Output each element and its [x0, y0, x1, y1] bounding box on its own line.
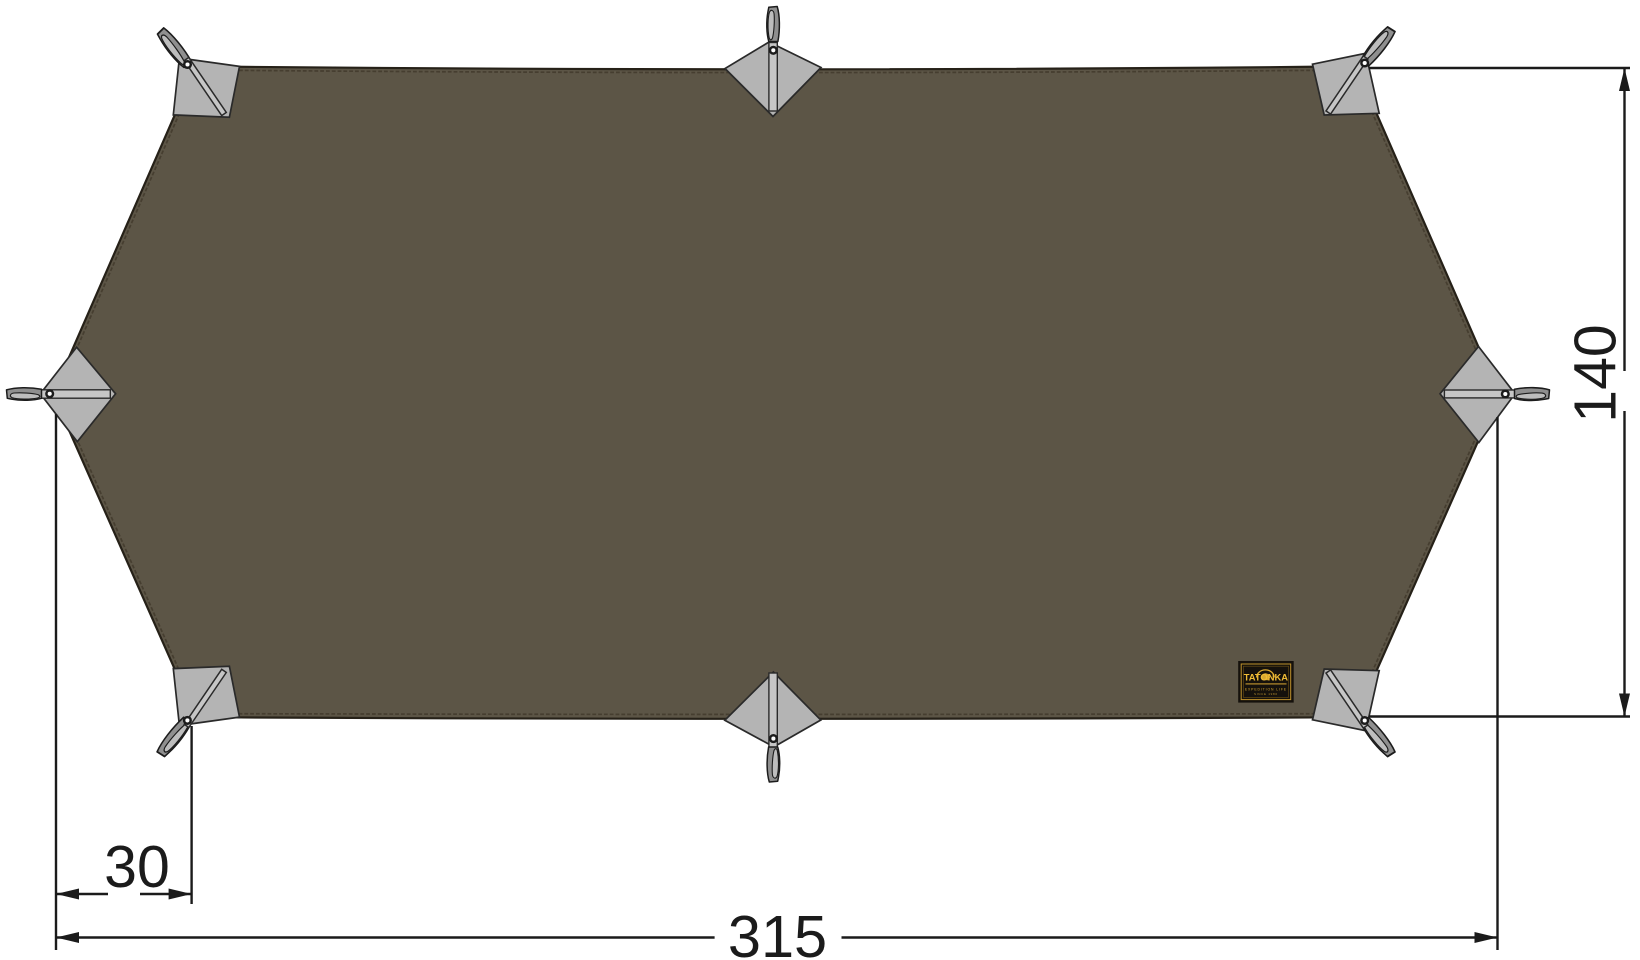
- svg-text:SINCE 1980: SINCE 1980: [1254, 692, 1278, 696]
- svg-text:315: 315: [728, 903, 827, 960]
- svg-text:140: 140: [1563, 324, 1629, 422]
- svg-text:30: 30: [104, 834, 170, 900]
- svg-text:EXPEDITION LIFE: EXPEDITION LIFE: [1245, 687, 1287, 691]
- svg-text:TATONKA: TATONKA: [1244, 672, 1288, 683]
